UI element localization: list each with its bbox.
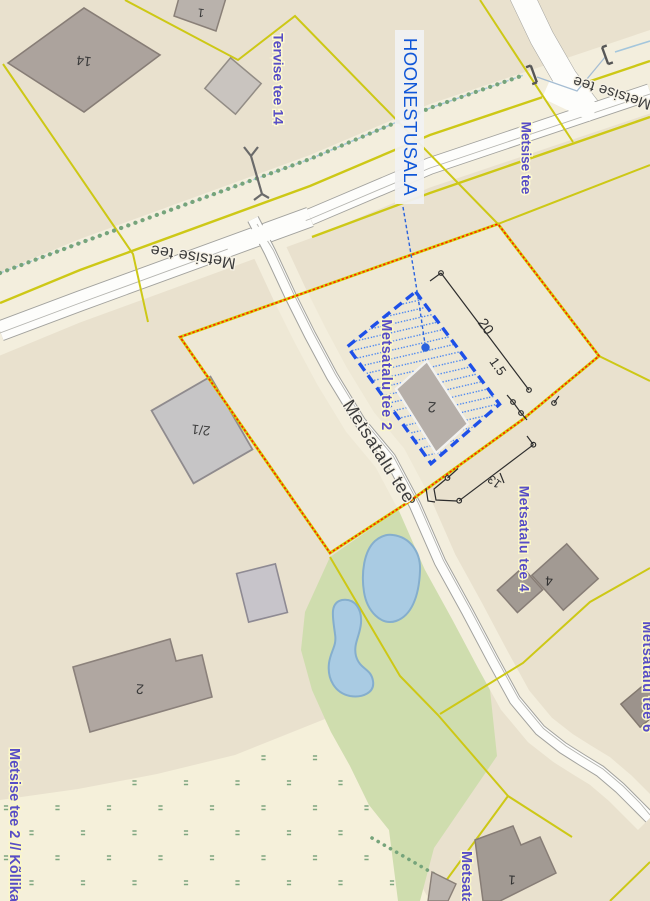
- svg-text:Metsise tee 2 // Kõllika: Metsise tee 2 // Kõllika: [6, 748, 22, 901]
- svg-text:2: 2: [427, 398, 437, 416]
- svg-text:Metsatalu tee 4: Metsatalu tee 4: [516, 486, 531, 592]
- svg-text:2/1: 2/1: [191, 421, 211, 438]
- svg-text:2: 2: [135, 681, 144, 698]
- svg-text:Metsatalu tee 2: Metsatalu tee 2: [378, 319, 394, 430]
- svg-text:1: 1: [508, 872, 516, 887]
- svg-text:Metsise tee: Metsise tee: [518, 122, 533, 195]
- svg-text:4: 4: [544, 573, 553, 588]
- svg-text:Tervise tee 14: Tervise tee 14: [270, 33, 286, 125]
- svg-text:HOONESTUSALA: HOONESTUSALA: [400, 38, 421, 196]
- svg-text:Metsatalu tee 6: Metsatalu tee 6: [639, 621, 650, 732]
- svg-text:14: 14: [75, 53, 92, 70]
- svg-text:Metsatal: Metsatal: [458, 851, 474, 901]
